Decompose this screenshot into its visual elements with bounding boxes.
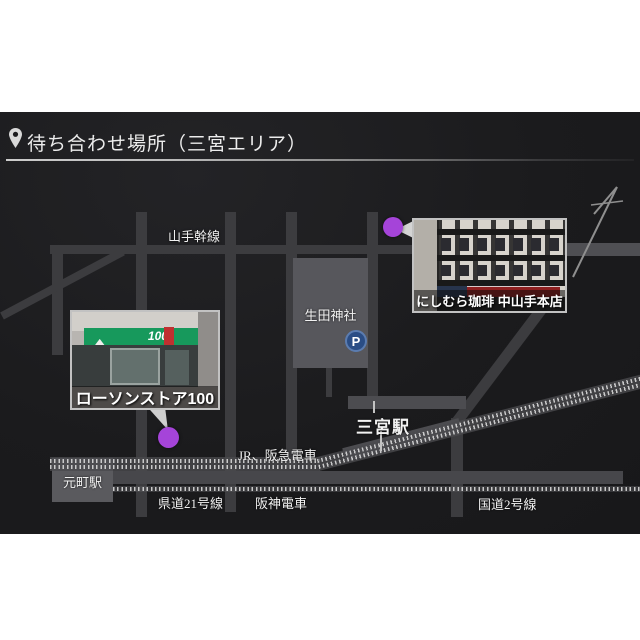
caption-lawson: ローソンストア100: [72, 386, 218, 408]
label-jr-hankyu: JR、阪急電車: [238, 445, 317, 464]
timber-beams: [437, 220, 565, 286]
railway-ties: [50, 465, 320, 469]
label-ikuta-shrine: 生田神社: [293, 305, 368, 324]
railway-ties: [113, 487, 640, 491]
caption-nishimura: にしむら珈琲 中山手本店: [414, 290, 565, 311]
window-row-2: [441, 265, 559, 277]
access-map-image: 山手幹線 生田神社 三宮駅 JR、阪急電車 元町駅 県道21号線 阪神電車 国道…: [0, 0, 640, 640]
page-title: 待ち合わせ場所（三宮エリア）: [27, 129, 307, 156]
leader-tick-top: [373, 401, 375, 413]
window-row-1: [441, 238, 559, 251]
location-pin-icon: [8, 127, 23, 151]
road-shrine-approach: [326, 368, 332, 397]
road-route2-band: [113, 471, 623, 484]
label-hanshin: 阪神電車: [255, 493, 307, 512]
label-sannomiya-station: 三宮駅: [356, 413, 410, 438]
marker-nishimura: [383, 217, 403, 237]
road-vertical-west-stub: [52, 252, 63, 355]
storefront-glass: [110, 348, 160, 384]
parking-icon: P: [345, 330, 367, 352]
title-divider: [6, 159, 634, 161]
storefront-door: [165, 350, 188, 385]
marker-lawson: [158, 427, 179, 448]
building-right: [198, 312, 218, 387]
label-yamate-kansen: 山手幹線: [168, 226, 220, 245]
parking-letter: P: [352, 334, 361, 349]
photo-lawson-store: 100 ローソンストア100: [70, 310, 220, 410]
station-hankyu-bar: [348, 396, 466, 409]
railway-hanshin: [113, 486, 640, 492]
caption-lawson-text: ローソンストア100: [76, 385, 214, 409]
photo-nishimura-coffee: にしむら珈琲 中山手本店: [412, 218, 567, 313]
label-kendo-21: 県道21号線: [158, 493, 223, 512]
label-kokudo-2: 国道2号線: [478, 494, 537, 513]
label-motomachi-station: 元町駅: [52, 472, 113, 491]
map-card: 山手幹線 生田神社 三宮駅 JR、阪急電車 元町駅 県道21号線 阪神電車 国道…: [0, 112, 640, 534]
road-vertical-4: [367, 212, 378, 397]
caption-nishimura-text: にしむら珈琲 中山手本店: [416, 291, 563, 310]
